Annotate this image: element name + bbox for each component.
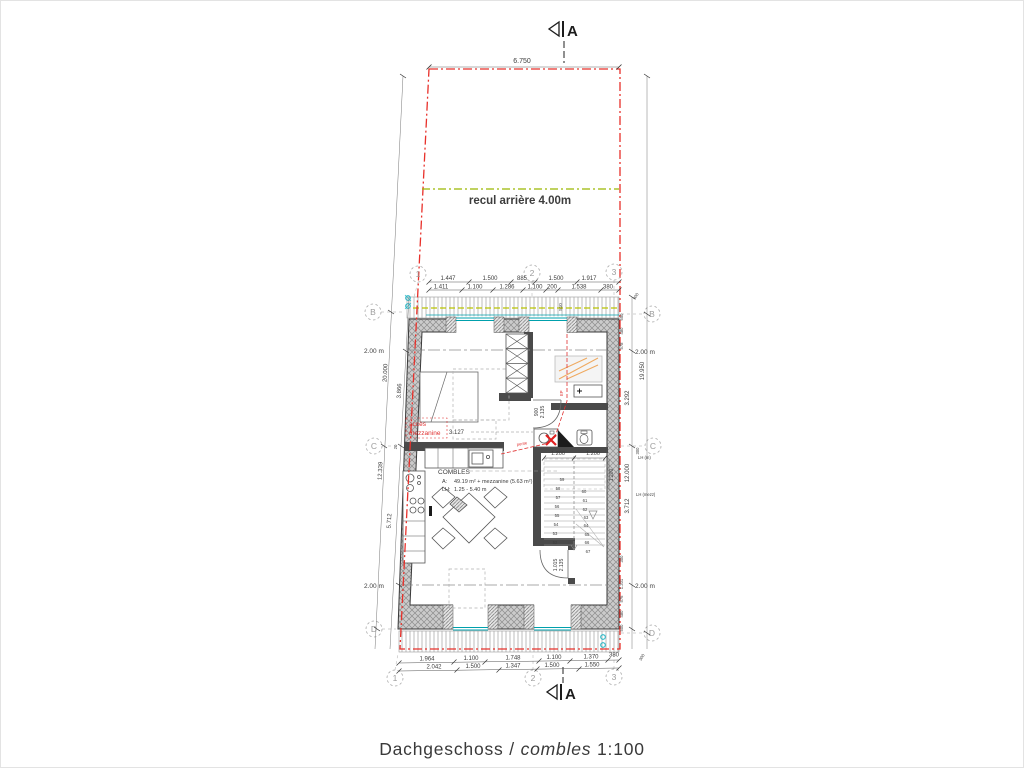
window-opening [534, 604, 571, 630]
dim-label: 578 [619, 342, 624, 350]
shelf-desk [574, 385, 602, 397]
dining-table [429, 487, 507, 549]
grid-bubble-2: 2 [531, 673, 536, 683]
dim-label: 1.100 [527, 285, 543, 291]
step-number: 63 [584, 515, 589, 520]
bed [420, 372, 478, 422]
lh-label: LH (m) [638, 455, 651, 460]
step-number: 60 [582, 489, 587, 494]
dim-label: 1.411 [434, 285, 449, 291]
section-letter: A [567, 23, 578, 40]
kitchen-counter-top [425, 448, 503, 468]
step-number: 53 [553, 531, 558, 536]
step-number: 56 [555, 504, 560, 509]
dim-label: 1.500 [465, 664, 481, 670]
floor-plan-page: 59 58 57 56 55 54 53 52 60 61 62 63 64 6… [0, 0, 1024, 768]
dim-label: 885 [517, 276, 528, 282]
step-number: 62 [583, 507, 588, 512]
step-number: 61 [583, 498, 588, 503]
acces-dimension: 3.127 [449, 430, 533, 436]
dim-label: 380 [603, 285, 614, 291]
stair-dimensions: 1.200 1.200 1.200 [542, 451, 615, 490]
dim-label: 1.100 [467, 285, 483, 291]
step-number: 64 [584, 523, 589, 528]
lh-label: LH (mezz) [636, 492, 656, 497]
step-number: 59 [560, 477, 565, 482]
dim-label: 1.201 [619, 578, 624, 589]
dim-label: 12.339 [378, 461, 385, 480]
grid-bubble-c: C [371, 441, 377, 451]
shower [558, 430, 574, 447]
step-number: 58 [556, 486, 561, 491]
dim-label: 12.000 [625, 463, 631, 482]
dim-label: 1.538 [571, 285, 587, 291]
dim-label: 1.100 [546, 655, 562, 661]
dim-label: 576 [619, 595, 624, 603]
step-number: 67 [586, 549, 591, 554]
floor-plan-drawing: 59 58 57 56 55 54 53 52 60 61 62 63 64 6… [1, 1, 1024, 768]
dim-label: 1.347 [505, 664, 521, 670]
grid-bubble-1: 1 [393, 673, 398, 683]
headroom-label: 2.00 m [635, 349, 655, 356]
roof-window-velux [555, 356, 602, 382]
hob-burner [410, 498, 416, 504]
dim-label: 1.500 [548, 276, 564, 282]
dim-label: 3.127 [449, 430, 465, 436]
step-number: 57 [556, 495, 561, 500]
dim-label: 200 [547, 285, 558, 291]
dim-label: 3.866 [397, 383, 404, 399]
chair [432, 528, 455, 549]
setback-label: recul arrière 4.00m [469, 195, 571, 207]
window-opening [529, 317, 567, 334]
room-lh-label: LH: [442, 487, 451, 493]
dim-label: 650 [619, 313, 624, 321]
room-lh-value: 1.25 - 5.40 m [454, 487, 487, 493]
grid-bubble-3: 3 [612, 672, 617, 682]
chair [484, 528, 507, 549]
dim-label: 1.447 [440, 276, 456, 282]
dim-label: 1.500 [544, 663, 560, 669]
roof-strip-top [407, 297, 619, 318]
section-arrow-icon [547, 685, 557, 699]
dim-label: 2.042 [426, 665, 442, 671]
dim-label: 20.000 [383, 363, 390, 382]
plot-width-dimension: 6.750 [427, 58, 622, 70]
dimension-chain-bottom: 1.964 1.100 1.748 1.100 1.370 380 2.042 … [397, 653, 622, 674]
dim-label: 1.964 [419, 657, 435, 663]
dim-label: 1.748 [505, 656, 521, 662]
dim-label: 300 [638, 652, 646, 661]
grid-bubble-c: C [650, 441, 656, 451]
dim-label: 1.917 [581, 276, 597, 282]
drawing-title: Dachgeschoss / combles 1:100 [1, 739, 1023, 760]
step-number: 54 [554, 522, 559, 527]
dim-label: 1.100 [463, 656, 479, 662]
dim-label: 510 [558, 303, 563, 311]
dim-label: 6.750 [513, 58, 531, 65]
dim-label: 5.712 [387, 513, 394, 529]
dim-label: 380 [609, 653, 620, 659]
dim-label: 1.550 [584, 663, 600, 669]
headroom-label: 2.00 m [364, 348, 384, 355]
grid-bubble-1: 1 [416, 269, 421, 279]
section-arrow-icon [549, 22, 559, 36]
step-number: 65 [585, 532, 590, 537]
dim-label: 3.712 [625, 498, 631, 514]
dimension-chain-top: 1.447 1.500 885 1.500 1.917 1.411 1.100 … [427, 276, 622, 293]
dim-label: 3.292 [625, 390, 631, 406]
title-french: combles [521, 739, 592, 759]
annotation-mezzanine: mezzanine [409, 430, 441, 437]
grid-bubble-b: B [649, 309, 655, 319]
window-opening [456, 317, 494, 334]
step-number: 55 [555, 513, 560, 518]
title-german: Dachgeschoss / [379, 739, 515, 759]
dim-label: 2.135 [559, 559, 565, 572]
dim-label: 1.200 [609, 469, 615, 482]
annotation-pente: pente [516, 440, 528, 447]
annotation-ep: EP [559, 390, 564, 396]
dim-label: 300 [632, 291, 640, 300]
dim-label: 2.135 [540, 406, 546, 419]
section-marker-bottom: A [547, 667, 576, 703]
section-marker-top: A [549, 21, 578, 63]
setback-line: recul arrière 4.00m [422, 189, 619, 207]
chair [484, 487, 507, 508]
dim-label: 480 [619, 327, 624, 335]
toilet [577, 430, 592, 445]
dim-label: 1.200 [586, 451, 600, 457]
section-letter: A [565, 686, 576, 703]
dim-label: 1.200 [551, 451, 565, 457]
dim-label: 1.286 [499, 285, 515, 291]
title-scale: 1:100 [597, 739, 645, 759]
dimension-chain-right: 19.950 3.292 12.000 3.712 2.00 m 2.00 m … [619, 74, 656, 662]
step-number: 66 [585, 540, 590, 545]
headroom-label: 2.00 m [635, 583, 655, 590]
grid-bubble-b: B [370, 307, 376, 317]
dim-label: 19.950 [640, 361, 646, 380]
dim-label: 1.370 [583, 655, 599, 661]
grid-bubble-d: D [649, 628, 655, 638]
headroom-label: 2.00 m [364, 583, 384, 590]
dim-label: 20 [393, 444, 398, 450]
dim-label: 480 [619, 610, 624, 618]
grid-bubble-3: 3 [612, 267, 617, 277]
room-area-value: 49.19 m² + mezzanine (5.63 m²) [454, 479, 533, 485]
wardrobe [506, 334, 528, 393]
room-area-label: A: [442, 479, 448, 485]
dim-label: 1.500 [482, 276, 498, 282]
dim-label: 500 [619, 624, 624, 632]
dim-label: 300 [635, 447, 640, 455]
room-name: COMBLES [438, 469, 470, 476]
step-number: 52 [553, 540, 558, 545]
dim-label: 300 [619, 555, 624, 563]
grid-bubble-2: 2 [530, 268, 535, 278]
